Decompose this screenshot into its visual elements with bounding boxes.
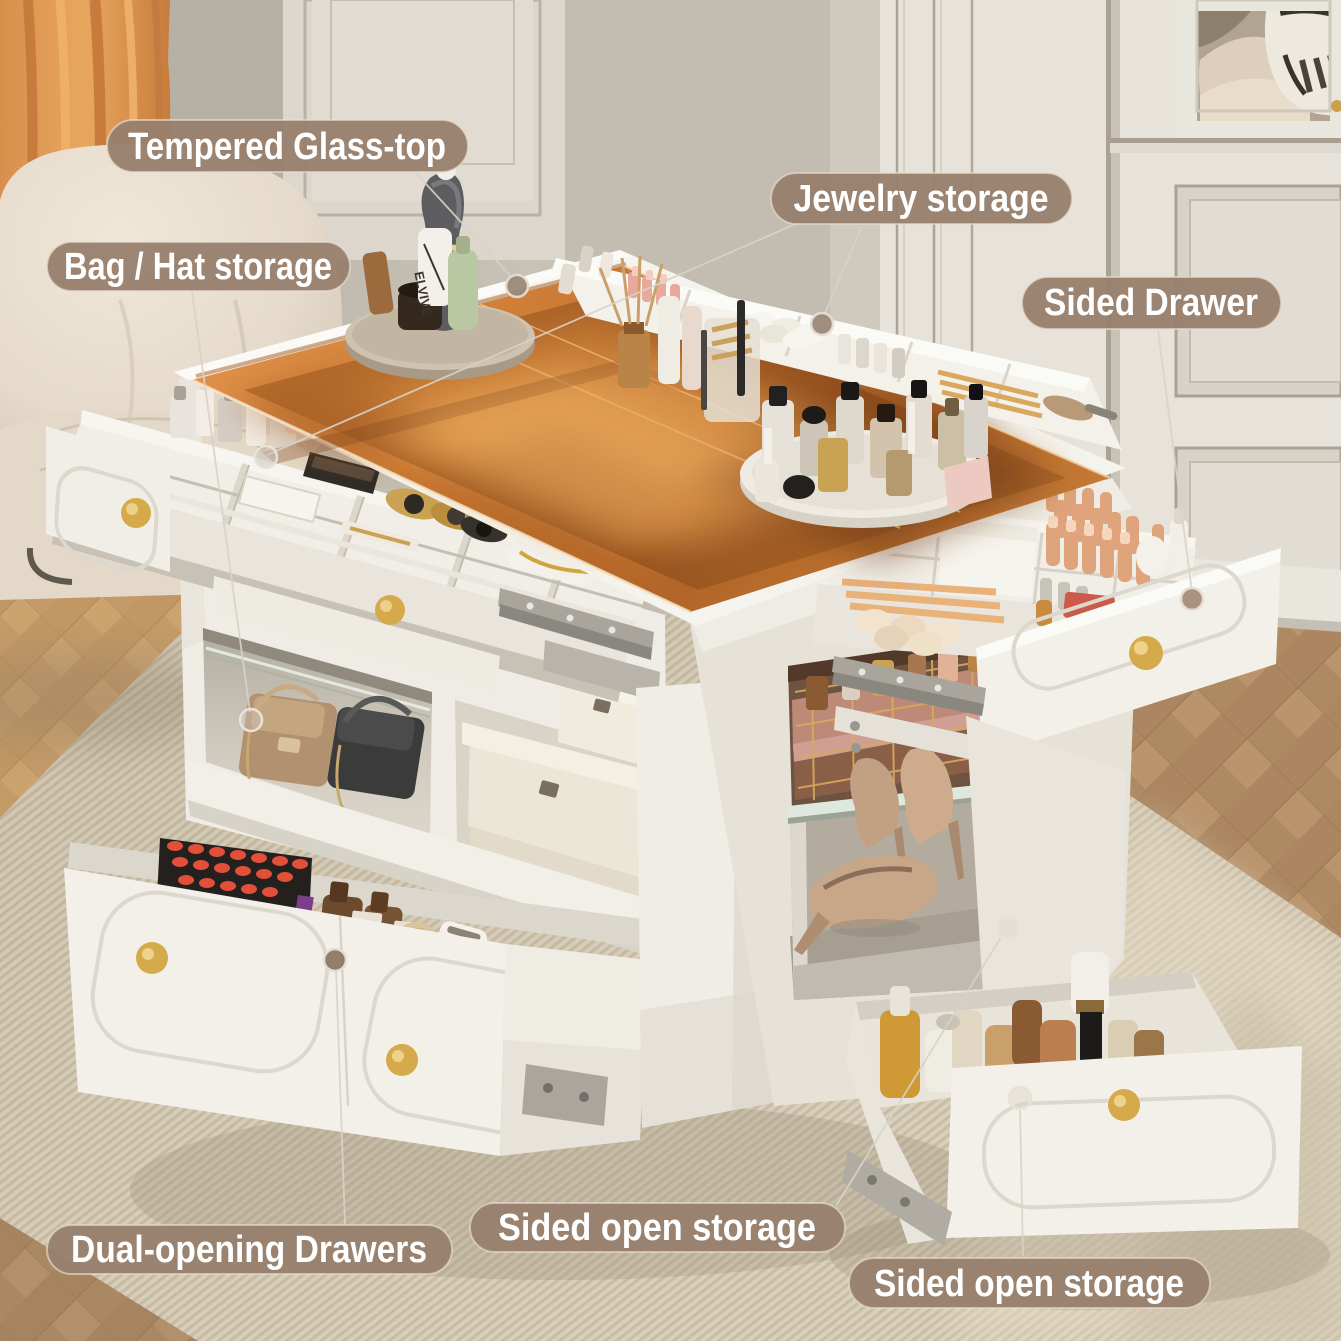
svg-text:Bag / Hat storage: Bag / Hat storage xyxy=(64,246,332,288)
svg-text:Sided Drawer: Sided Drawer xyxy=(1044,282,1258,324)
svg-text:Dual-opening Drawers: Dual-opening Drawers xyxy=(71,1229,427,1271)
svg-text:Jewelry storage: Jewelry storage xyxy=(794,178,1049,220)
svg-text:Sided open storage: Sided open storage xyxy=(498,1207,816,1249)
svg-text:Tempered Glass-top: Tempered Glass-top xyxy=(128,126,446,168)
svg-text:Sided open storage: Sided open storage xyxy=(874,1263,1184,1305)
